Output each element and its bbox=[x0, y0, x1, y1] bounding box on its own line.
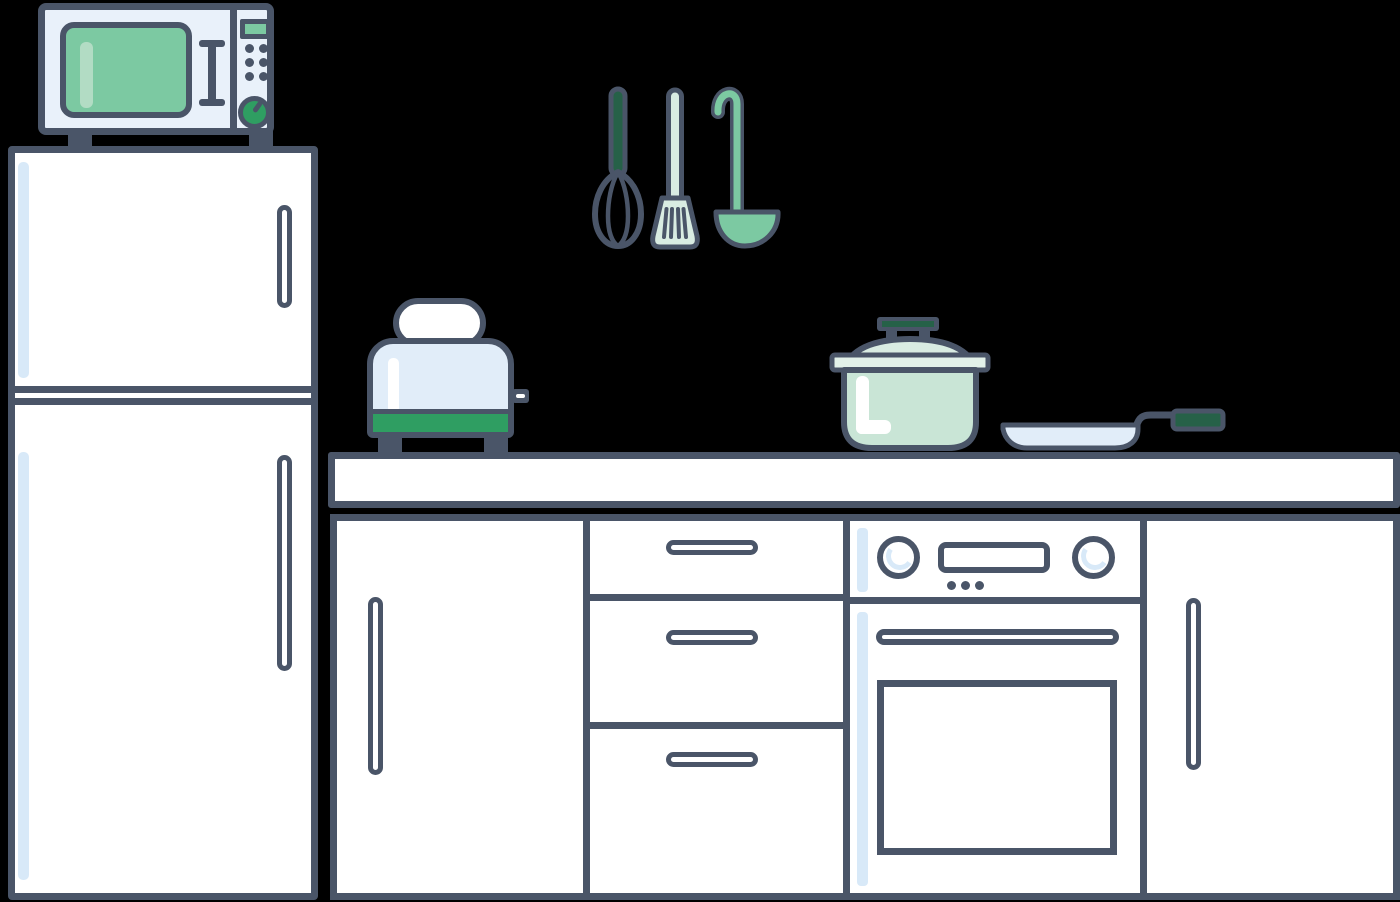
oven-door-handle bbox=[876, 629, 1119, 645]
fridge-top-handle bbox=[277, 205, 292, 308]
drawer-divider bbox=[590, 594, 843, 601]
countertop bbox=[328, 452, 1400, 508]
microwave-handle-cap-bottom bbox=[199, 99, 225, 106]
microwave-dial-icon bbox=[238, 96, 271, 129]
cooking-pot bbox=[825, 312, 995, 454]
spatula-icon bbox=[653, 90, 698, 247]
keypad-dot bbox=[245, 72, 254, 81]
toaster-lever bbox=[512, 389, 529, 403]
left-cupboard-handle bbox=[368, 597, 383, 775]
fridge-bottom-door-highlight bbox=[18, 452, 29, 880]
drawer-handle bbox=[666, 752, 758, 767]
microwave-window bbox=[60, 22, 192, 118]
oven-indicator-dot bbox=[975, 581, 984, 590]
microwave-panel-divider bbox=[230, 5, 237, 133]
oven-window bbox=[877, 680, 1117, 855]
oven-knob-right bbox=[1072, 536, 1115, 579]
oven-panel-divider bbox=[850, 597, 1140, 604]
keypad-dot bbox=[259, 72, 268, 81]
frying-pan bbox=[995, 403, 1230, 455]
microwave-handle-bar bbox=[208, 44, 216, 104]
cabinet-divider bbox=[1140, 516, 1147, 898]
fridge-bottom-handle bbox=[277, 455, 292, 671]
oven-indicator-dot bbox=[961, 581, 970, 590]
keypad-dot bbox=[245, 58, 254, 67]
fridge-body bbox=[8, 146, 318, 900]
fridge-top-door-highlight bbox=[18, 162, 29, 378]
cabinet-divider bbox=[583, 516, 590, 898]
oven-knob-arc bbox=[884, 540, 916, 572]
drawer-handle bbox=[666, 540, 758, 555]
cabinet-divider bbox=[843, 516, 850, 898]
fridge-door-divider-upper bbox=[8, 386, 318, 393]
pot-lid-handle-grip bbox=[882, 321, 934, 327]
oven-panel-highlight bbox=[857, 528, 868, 592]
whisk-icon bbox=[595, 89, 641, 246]
oven-indicator-dot bbox=[947, 581, 956, 590]
toaster-body bbox=[367, 338, 514, 438]
pan-handle-grip bbox=[1173, 411, 1223, 429]
toaster-highlight bbox=[388, 358, 399, 413]
utensil-rack bbox=[588, 86, 793, 254]
oven-knob-arc bbox=[1079, 540, 1111, 572]
right-cupboard-handle bbox=[1186, 598, 1201, 770]
toaster-base-band bbox=[373, 409, 508, 432]
toaster-lever-dash bbox=[516, 394, 525, 398]
oven-display bbox=[938, 542, 1050, 573]
pan-bowl bbox=[1003, 425, 1138, 448]
ladle-icon bbox=[716, 94, 778, 246]
kitchen-scene bbox=[0, 0, 1400, 902]
pot-highlight bbox=[856, 420, 891, 434]
oven-door-highlight bbox=[857, 612, 868, 886]
keypad-dot bbox=[245, 44, 254, 53]
drawer-divider bbox=[590, 722, 843, 729]
drawer-handle bbox=[666, 630, 758, 645]
keypad-dot bbox=[259, 58, 268, 67]
microwave-display bbox=[240, 19, 271, 39]
microwave-window-highlight bbox=[80, 42, 93, 108]
fridge-door-divider-lower bbox=[8, 398, 318, 405]
oven-knob-left bbox=[877, 536, 920, 579]
keypad-dot bbox=[259, 44, 268, 53]
microwave-dial-pointer bbox=[252, 101, 263, 114]
